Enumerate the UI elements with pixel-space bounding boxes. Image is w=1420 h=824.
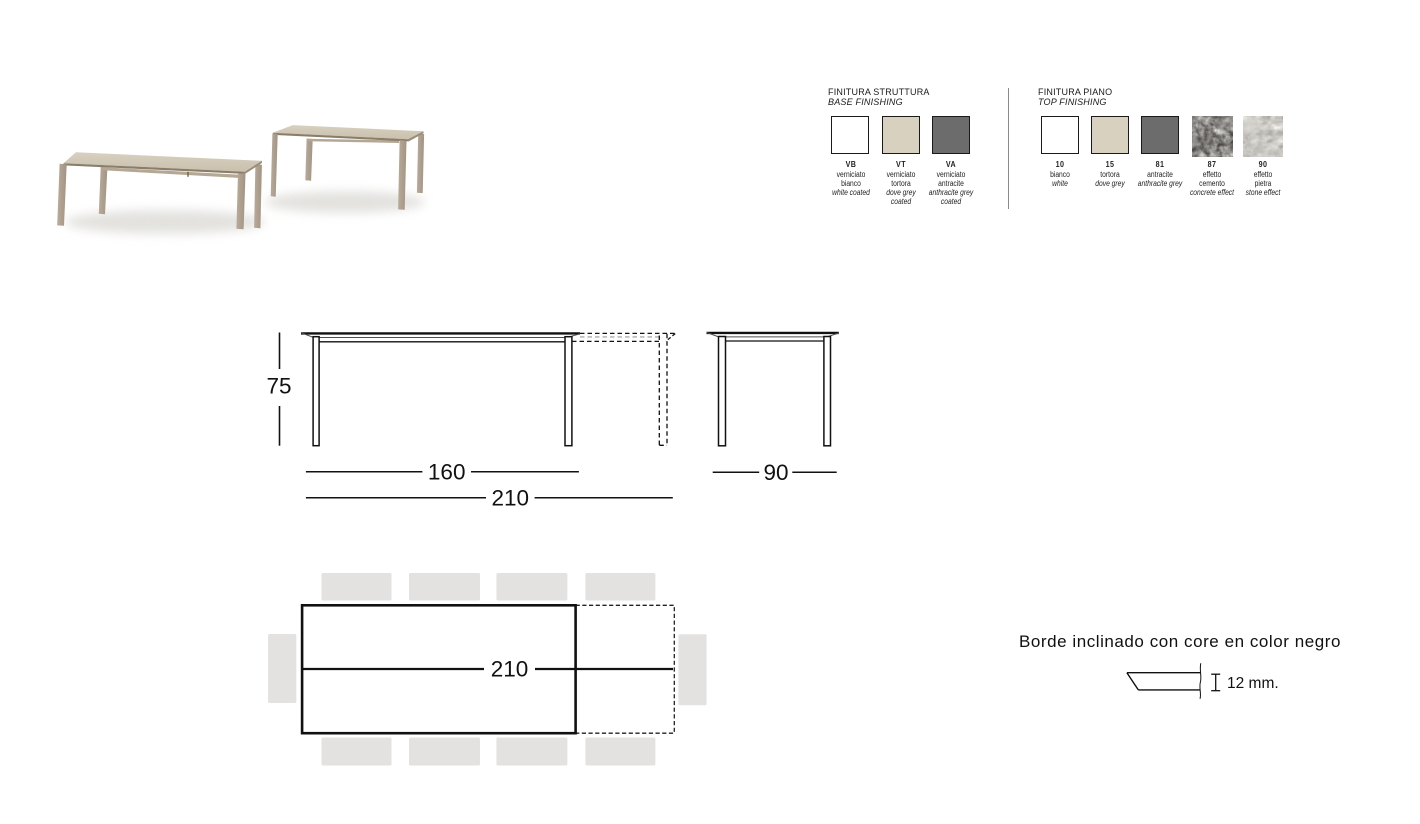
svg-text:12 mm.: 12 mm. bbox=[1227, 675, 1279, 692]
svg-text:210: 210 bbox=[492, 485, 530, 510]
svg-text:75: 75 bbox=[266, 374, 291, 399]
svg-text:90: 90 bbox=[763, 460, 788, 485]
svg-text:210: 210 bbox=[491, 657, 529, 682]
svg-text:160: 160 bbox=[428, 459, 466, 484]
